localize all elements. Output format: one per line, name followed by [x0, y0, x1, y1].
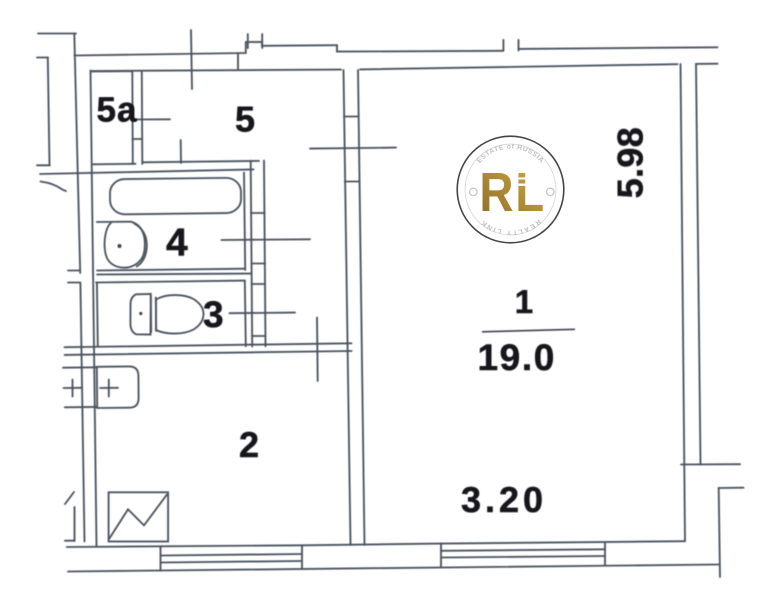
svg-text:4: 4 [166, 222, 188, 265]
svg-text:3: 3 [203, 294, 224, 335]
svg-text:2: 2 [239, 424, 259, 465]
svg-text:RL: RL [479, 161, 546, 223]
svg-text:5a: 5a [97, 91, 138, 130]
svg-text:3.20: 3.20 [461, 479, 547, 520]
svg-text:5.98: 5.98 [610, 127, 651, 198]
svg-text:1: 1 [515, 283, 533, 320]
svg-text:5: 5 [235, 99, 255, 140]
svg-text:19.0: 19.0 [478, 337, 556, 378]
